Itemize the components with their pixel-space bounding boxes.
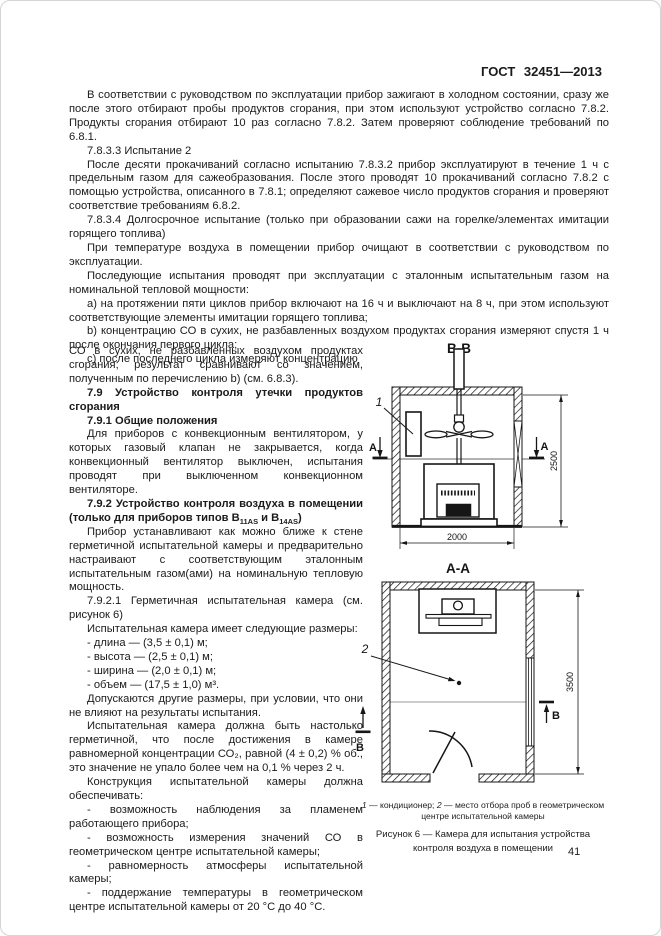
svg-text:В: В <box>552 710 560 722</box>
paragraph: При температуре воздуха в помещении приб… <box>69 242 609 270</box>
callout-2-label: 2 <box>361 642 369 656</box>
svg-text:2000: 2000 <box>447 532 467 542</box>
paragraph: Конструкция испытательной камеры должна … <box>69 776 363 804</box>
svg-text:2500: 2500 <box>549 451 559 471</box>
section-heading-7-9: 7.9 Устройство контроля утечки продуктов… <box>69 387 363 415</box>
paragraph: Испытательная камера должна быть настоль… <box>69 720 363 776</box>
page-number: 41 <box>568 846 580 858</box>
section-marker-a-left: А <box>369 437 387 459</box>
document-page: ГОСТ 32451—2013 В соответствии с руковод… <box>0 0 661 936</box>
paragraph: В соответствии с руководством по эксплуа… <box>69 89 609 145</box>
sampling-point <box>457 681 461 685</box>
appliance-plan <box>419 589 496 633</box>
subsection-heading: 7.8.3.4 Долгосрочное испытание (только п… <box>69 214 609 242</box>
svg-text:А: А <box>369 442 377 454</box>
left-text-column: СО в сухих, не разбавленных воздухом про… <box>69 345 363 915</box>
section-heading-7-9-1: 7.9.1 Общие положения <box>69 415 363 429</box>
svg-text:А: А <box>541 441 549 453</box>
list-item: - длина — (3,5 ± 0,1) м; <box>69 637 363 651</box>
section-heading-7-9-2: 7.9.2 Устройство контроля воздуха в поме… <box>69 498 363 526</box>
paragraph: Последующие испытания проводят при экспл… <box>69 270 609 298</box>
diagram-section-bb: В-В <box>351 337 615 561</box>
section-marker-b-left: В <box>356 706 371 754</box>
paragraph: Испытательная камера имеет следующие раз… <box>69 623 363 637</box>
dimension-length: 3500 <box>535 590 584 774</box>
list-item: - ширина — (2,0 ± 0,1) м; <box>69 665 363 679</box>
paragraph: Для приборов с конвекционным вентиляторо… <box>69 428 363 498</box>
stirring-fan <box>425 389 493 464</box>
paragraph: СО в сухих, не разбавленных воздухом про… <box>69 345 363 387</box>
subsection-heading: 7.8.3.3 Испытание 2 <box>69 145 609 159</box>
air-conditioner <box>406 412 421 456</box>
section-marker-b-right: В <box>539 701 560 723</box>
figure-column: В-В <box>351 337 615 855</box>
dimension-height: 2500 <box>523 395 568 527</box>
doc-code-header: ГОСТ 32451—2013 <box>481 64 602 79</box>
callout-1-label: 1 <box>376 395 383 409</box>
figure-caption: Рисунок 6 — Камера для испытания устройс… <box>375 828 591 855</box>
paragraph: Прибор устанавливают как можно ближе к с… <box>69 526 363 596</box>
list-item: - высота — (2,5 ± 0,1) м; <box>69 651 363 665</box>
dimension-width: 2000 <box>400 528 514 549</box>
figure-legend: 1 — кондиционер; 2 — место отбора проб в… <box>360 800 606 822</box>
subsection-heading: 7.9.2.1 Герметичная испытательная камера… <box>69 595 363 623</box>
svg-text:В: В <box>356 742 364 754</box>
callout-2-arrowhead <box>448 677 456 681</box>
body-text-block: В соответствии с руководством по эксплуа… <box>69 89 609 367</box>
paragraph: После десяти прокачиваний согласно испыт… <box>69 159 609 215</box>
list-item: - поддержание температуры в геометрическ… <box>69 887 363 915</box>
svg-text:3500: 3500 <box>565 672 575 692</box>
list-item: a) на протяжении пяти циклов прибор вклю… <box>69 298 609 326</box>
list-item: - возможность измерения значений СО в ге… <box>69 832 363 860</box>
diagram-section-aa: А-А <box>351 561 615 799</box>
section-marker-a-right: А <box>529 437 549 459</box>
paragraph: Допускаются другие размеры, при условии,… <box>69 693 363 721</box>
list-item: - объем — (17,5 ± 1,0) м³. <box>69 679 363 693</box>
section-aa-title: А-А <box>446 561 470 576</box>
list-item: - возможность наблюдения за пламенем раб… <box>69 804 363 832</box>
list-item: - равномерность атмосферы испытательной … <box>69 860 363 888</box>
fireplace-appliance <box>421 464 497 526</box>
door <box>429 731 472 773</box>
flue-duct <box>454 349 464 389</box>
